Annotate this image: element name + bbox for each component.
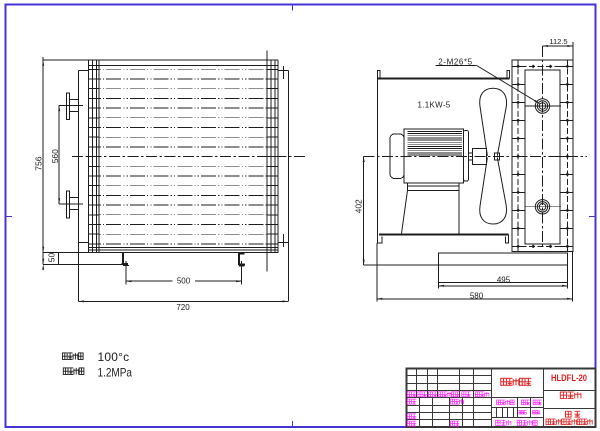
svg-text:1.2MPa: 1.2MPa: [98, 366, 133, 380]
svg-text:402: 402: [354, 199, 364, 213]
svg-text:4: 4: [537, 410, 540, 416]
svg-text:720: 720: [176, 303, 190, 312]
svg-text:560: 560: [50, 149, 60, 163]
svg-text:1.1KW-5: 1.1KW-5: [417, 101, 450, 110]
svg-text:2-M26*5: 2-M26*5: [438, 57, 472, 66]
svg-text:5: 5: [524, 410, 527, 416]
svg-text:500: 500: [177, 277, 191, 286]
svg-text:580: 580: [470, 291, 484, 300]
svg-text:112.5: 112.5: [549, 37, 567, 46]
svg-text:HLDFL-20: HLDFL-20: [551, 373, 587, 384]
svg-text:50: 50: [46, 253, 56, 263]
svg-text:495: 495: [497, 275, 511, 284]
svg-text:100°c: 100°c: [98, 350, 130, 364]
svg-text:756: 756: [34, 156, 44, 170]
